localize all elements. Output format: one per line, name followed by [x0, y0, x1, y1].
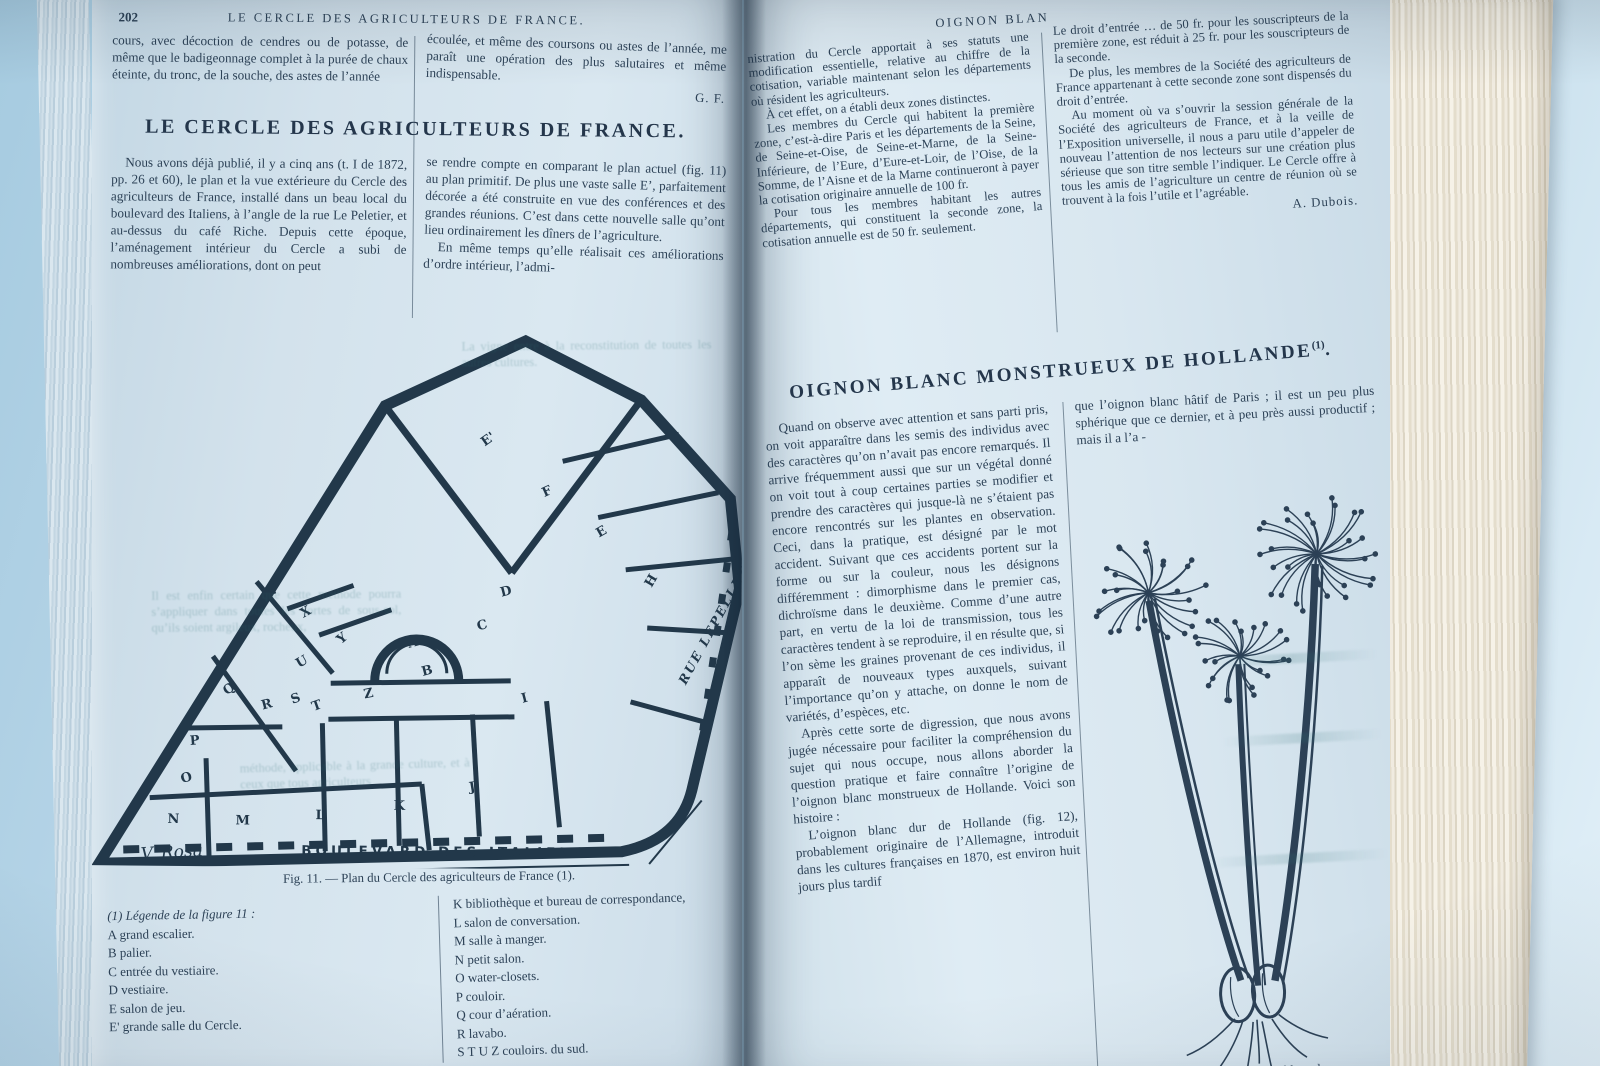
title-footnote-mark: (1)	[1311, 339, 1325, 352]
room-label: F	[540, 483, 555, 501]
legend-left-column: (1) Légende de la figure 11 : A grand es…	[107, 902, 409, 1037]
paragraph: Quand on observe avec attention et sans …	[764, 400, 1070, 726]
room-label: S	[289, 690, 303, 707]
room-label: E'	[478, 430, 498, 450]
right-top-col2: Le droit d’entrée … de 50 fr. pour les s…	[1053, 9, 1359, 224]
left-body-col1: Nous avons déjà publié, il y a cinq ans …	[110, 153, 407, 275]
right-page: OIGNON BLAN nistration du Cercle apporta…	[744, 0, 1390, 1066]
ghost-text: La vigne entre à la reconstitution de to…	[461, 336, 711, 370]
room-label: M	[235, 813, 250, 828]
paragraph: que l’oignon blanc hâtif de Paris ; il e…	[1074, 382, 1376, 449]
right-body-col1: Quand on observe avec attention et sans …	[764, 400, 1082, 896]
room-label: T	[310, 697, 324, 714]
room-label: N	[167, 812, 179, 827]
onion-illustration	[1077, 439, 1390, 1066]
running-header-left: LE CERCLE DES AGRICULTEURS DE FRANCE.	[96, 9, 716, 29]
room-label: U	[293, 652, 311, 671]
floor-plan-figure: La vigne entre à la reconstitution de to…	[92, 325, 742, 871]
figure11-caption: Fig. 11. — Plan du Cercle des agriculteu…	[129, 866, 729, 888]
ghost-text: Il est enfin certain que cette méthode p…	[151, 586, 401, 636]
legend-item: E' grande salle du Cercle.	[109, 1013, 409, 1037]
paragraph: se rendre compte en comparant le plan ac…	[424, 153, 727, 247]
room-label: E	[594, 523, 610, 541]
left-body-col2: se rendre compte en comparant le plan ac…	[423, 153, 727, 281]
room-label: Q	[220, 680, 238, 699]
room-label: R	[260, 696, 274, 713]
book-gutter	[722, 0, 766, 1066]
left-top-col2: écoulée, et même des coursons ou astes d…	[425, 30, 727, 107]
room-label: C	[475, 617, 489, 634]
left-top-col1: cours, avec décoction de cendres ou de p…	[112, 31, 408, 85]
room-label: Z	[362, 686, 375, 703]
paragraph: Au moment où va s’ouvrir la session géné…	[1057, 94, 1358, 209]
room-label: D	[499, 583, 514, 600]
right-body-col2: que l’oignon blanc hâtif de Paris ; il e…	[1074, 382, 1390, 1066]
room-label: H	[642, 572, 661, 590]
engraver-signature: V. Rosa	[140, 841, 203, 865]
room-label: B	[420, 663, 434, 680]
legend-right-column: K bibliothèque et bureau de correspondan…	[438, 887, 733, 1062]
paragraph: écoulée, et même des coursons ou astes d…	[426, 30, 728, 92]
column-divider	[412, 36, 415, 318]
left-page: 202 LE CERCLE DES AGRICULTEURS DE FRANCE…	[92, 0, 742, 1066]
ghost-text: méthode, applicable à la grande culture,…	[240, 754, 471, 792]
room-label: P	[189, 733, 200, 749]
street-label-boulevard: BOULEVARD DES ITALIENS	[301, 843, 588, 862]
room-label: K	[394, 799, 406, 814]
room-label: L	[315, 808, 324, 823]
article-title-cercle: LE CERCLE DES AGRICULTEURS DE FRANCE.	[95, 115, 735, 144]
room-label: I	[520, 691, 530, 707]
right-top-col1: nistration du Cercle apportait à ses sta…	[747, 29, 1044, 250]
room-label: O	[179, 769, 194, 786]
title-period: .	[1324, 339, 1333, 361]
book-photo: 202 LE CERCLE DES AGRICULTEURS DE FRANCE…	[0, 0, 1600, 1066]
onion-svg	[1077, 439, 1390, 1066]
